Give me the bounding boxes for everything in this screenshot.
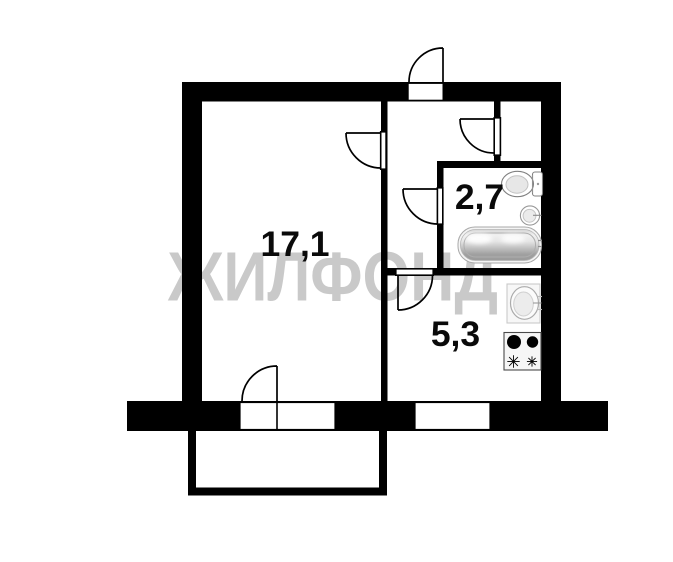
svg-text:2,7: 2,7 bbox=[455, 177, 504, 217]
svg-text:ЖИЛФОНД: ЖИЛФОНД bbox=[167, 238, 498, 316]
svg-text:5,3: 5,3 bbox=[431, 314, 480, 354]
svg-text:17,1: 17,1 bbox=[260, 224, 329, 264]
